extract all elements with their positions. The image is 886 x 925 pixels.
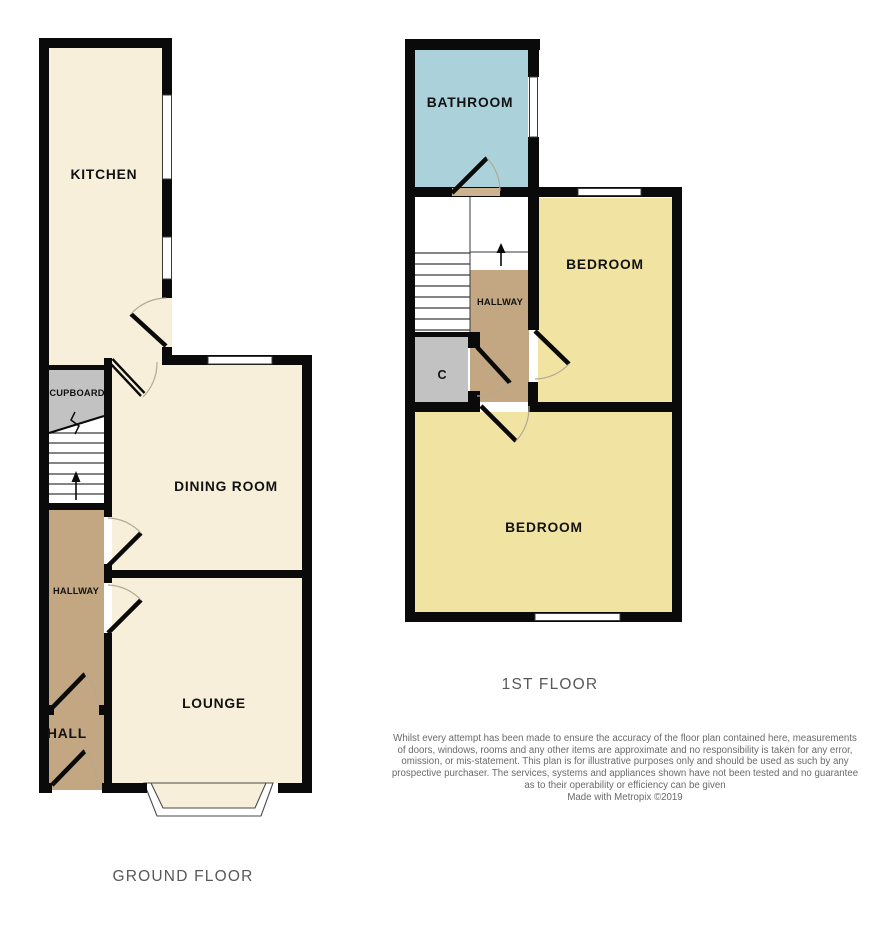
bathroom-door-threshold (452, 188, 500, 196)
bedroom1-window (578, 189, 641, 196)
ground-floor-title: GROUND FLOOR (113, 868, 254, 885)
lounge-floor (112, 578, 302, 783)
disclaimer-line: prospective purchaser. The services, sys… (355, 768, 886, 780)
cupboard-label: CUPBOARD (49, 388, 104, 398)
bedroom2-label: BEDROOM (505, 520, 583, 535)
bedroom2-window (535, 614, 620, 621)
disclaimer-line: Whilst every attempt has been made to en… (355, 733, 886, 745)
first-floor-plan: BATHROOM BEDROOM HALLWAY C BEDROOM 1ST F… (405, 39, 682, 693)
floorplan-page: KITCHEN CUPBOARD DINING ROOM HALLWAY HAL… (0, 0, 886, 925)
lounge-bay-window (144, 783, 273, 816)
hall-label: HALL (47, 726, 87, 741)
first-floor-title: 1ST FLOOR (502, 676, 599, 693)
bedroom2-floor (415, 412, 672, 612)
lounge-label: LOUNGE (182, 696, 246, 711)
disclaimer-line: of doors, windows, rooms and any other i… (355, 745, 886, 757)
disclaimer-line: omission, or mis-statement. This plan is… (355, 756, 886, 768)
bedroom1-label: BEDROOM (566, 257, 644, 272)
c-cupboard-label: C (437, 368, 446, 382)
kitchen-floor (49, 48, 162, 365)
bedroom1-floor (538, 198, 672, 402)
ground-hallway-label: HALLWAY (53, 586, 100, 596)
kitchen-window-1 (163, 95, 172, 179)
dining-room-label: DINING ROOM (174, 479, 278, 494)
disclaimer-line: as to their operability or efficiency ca… (355, 780, 886, 792)
dining-window (208, 357, 272, 365)
metropix-credit: Made with Metropix ©2019 (355, 792, 886, 804)
disclaimer-text: Whilst every attempt has been made to en… (355, 733, 886, 803)
bathroom-label: BATHROOM (427, 95, 514, 110)
first-hallway-label: HALLWAY (477, 297, 524, 307)
bathroom-window (530, 77, 538, 137)
bathroom-floor (415, 50, 528, 187)
kitchen-back-door-gap (162, 298, 172, 347)
kitchen-label: KITCHEN (71, 167, 138, 182)
ground-floor-plan: KITCHEN CUPBOARD DINING ROOM HALLWAY HAL… (39, 38, 312, 885)
hallway-floor (49, 510, 104, 790)
kitchen-window-2 (163, 237, 172, 279)
